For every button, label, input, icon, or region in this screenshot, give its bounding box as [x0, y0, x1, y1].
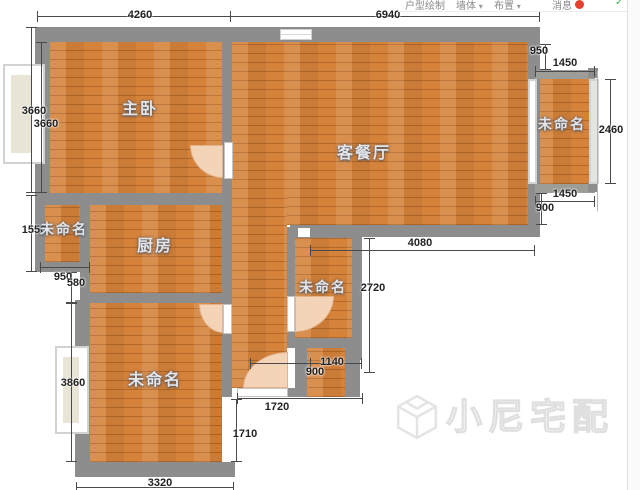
room-label-unnamed-middle: 未命名: [292, 277, 354, 297]
wall-mid-horizontal[interactable]: [35, 193, 232, 205]
dim-label-3660-a: 3660: [14, 105, 54, 118]
room-label-kitchen: 厨房: [123, 232, 187, 256]
watermark: 小尼宅配: [394, 394, 614, 440]
dim-label-3320: 3320: [133, 477, 187, 490]
dim-label-3860: 3860: [53, 377, 93, 390]
dim-tick-top-mid: [230, 11, 231, 22]
floorplan-editor-canvas: 4260 6940 950 1450 2460 1450 900 3660 36…: [0, 0, 640, 490]
dim-label-2720: 2720: [350, 282, 396, 295]
door-bottom-bedroom[interactable]: [223, 304, 232, 334]
room-label-master-bedroom: 主卧: [103, 95, 177, 119]
top-bar: 户型绘制 墙体 ▾ 布置 ▾ 消息 ✓: [0, 0, 640, 12]
dim-label-1450-bottom: 1450: [541, 188, 589, 201]
dim-label-1710: 1710: [223, 428, 267, 441]
wall-spine-vertical[interactable]: [222, 42, 232, 397]
chevron-down-icon: ▾: [517, 2, 521, 11]
door-master-bedroom[interactable]: [224, 142, 233, 179]
dim-line-mid-2720: [369, 238, 370, 373]
door-entry[interactable]: [237, 388, 288, 397]
dim-line-mid-4080: [310, 250, 535, 251]
dim-label-1450-top: 1450: [541, 57, 589, 70]
dim-line-bottom-1720: [237, 398, 363, 399]
dim-label-900-mid: 900: [297, 366, 333, 379]
vent-bath-top: [298, 228, 310, 237]
watermark-cube-icon: [394, 394, 440, 440]
dim-label-3660-b: 3660: [26, 118, 66, 131]
dim-label-4080: 4080: [395, 237, 445, 250]
status-check-icon[interactable]: ✓: [615, 0, 623, 8]
room-label-living-dining: 客餐厅: [322, 139, 406, 163]
room-label-unnamed-bottom: 未命名: [118, 366, 192, 390]
right-panel-edge: [627, 0, 640, 490]
wall-bedroom-bottom[interactable]: [75, 462, 235, 477]
wall-entry-stub[interactable]: [288, 388, 297, 397]
door-bathroom[interactable]: [287, 296, 295, 332]
window-top-wall[interactable]: [280, 29, 312, 40]
dim-line-left-950: [40, 267, 90, 268]
notification-badge: [575, 0, 584, 9]
wall-bath-bottom[interactable]: [287, 338, 362, 348]
chevron-down-icon: ▾: [479, 2, 483, 11]
top-bar-divider: [398, 11, 628, 12]
dim-label-900-right: 900: [527, 202, 563, 215]
dim-label-580: 580: [59, 277, 93, 290]
room-label-unnamed-right: 未命名: [531, 114, 593, 134]
dim-line-right-1450-top: [535, 71, 595, 72]
wall-kitchen-bottom[interactable]: [80, 293, 232, 303]
extension-line-right: [597, 71, 598, 211]
room-label-unnamed-left: 未命名: [33, 219, 95, 239]
watermark-text: 小尼宅配: [446, 394, 614, 440]
dim-label-1720: 1720: [250, 401, 304, 414]
